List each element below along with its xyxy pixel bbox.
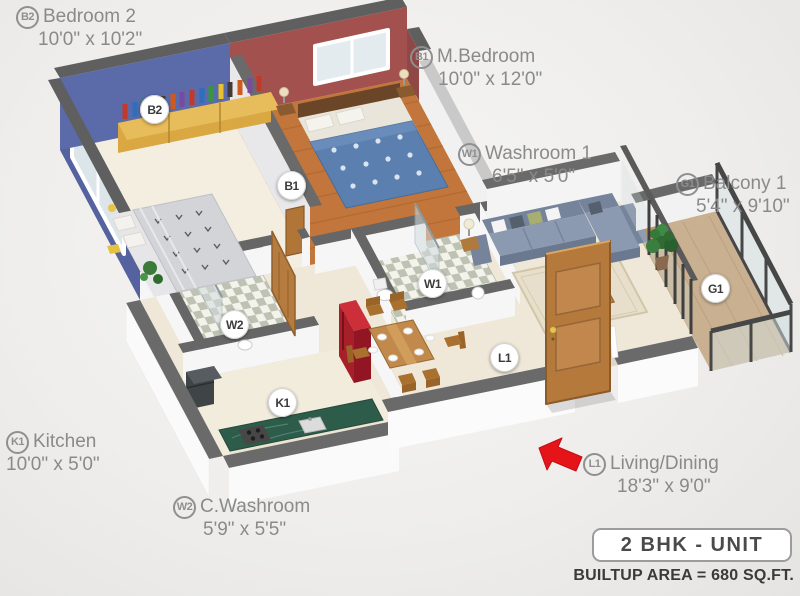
room-badge-b1: B1 — [410, 46, 433, 69]
lamp — [108, 204, 116, 212]
lamp — [280, 88, 289, 97]
room-name: Bedroom 2 — [43, 7, 136, 28]
room-marker-w1: W1 — [418, 269, 447, 298]
door-knob — [550, 327, 557, 334]
room-badge-k1: K1 — [6, 431, 29, 454]
room-dims: 10'0" x 10'2" — [16, 30, 142, 51]
entrance-arrow-icon — [539, 438, 582, 471]
room-name: Kitchen — [33, 432, 96, 453]
room-dims: 10'0" x 12'0" — [410, 70, 542, 91]
floorplan-3d-render — [0, 0, 800, 596]
lamp — [400, 70, 409, 79]
label-bedroom2: B2 Bedroom 2 10'0" x 10'2" — [16, 6, 142, 51]
label-kitchen: K1 Kitchen 10'0" x 5'0" — [6, 431, 100, 476]
room-name: M.Bedroom — [437, 47, 535, 68]
room-marker-k1: K1 — [268, 388, 297, 417]
room-badge-w1: W1 — [458, 143, 481, 166]
label-balcony1: G1 Balcony 1 5'4" x 9'10" — [676, 173, 790, 218]
label-master-bedroom: B1 M.Bedroom 10'0" x 12'0" — [410, 46, 542, 91]
room-dims: 5'4" x 9'10" — [676, 197, 790, 218]
room-dims: 18'3" x 9'0" — [583, 477, 719, 498]
room-badge-b2: B2 — [16, 6, 39, 29]
room-marker-b2: B2 — [140, 95, 169, 124]
washbasin — [472, 287, 484, 299]
builtup-area-text: BUILTUP AREA = 680 SQ.FT. — [560, 567, 794, 585]
lamp — [464, 219, 474, 229]
room-marker-w2: W2 — [220, 310, 249, 339]
room-name: Balcony 1 — [703, 174, 786, 195]
room-badge-g1: G1 — [676, 173, 699, 196]
toilet-tank — [373, 278, 387, 290]
entrance-door — [546, 241, 618, 413]
room-marker-l1: L1 — [490, 343, 519, 372]
room-name: Washroom 1 — [485, 144, 592, 165]
room-name: C.Washroom — [200, 497, 310, 518]
floorplan-canvas: B2 B1 W1 W2 K1 L1 G1 B2 Bedroom 2 10'0" … — [0, 0, 800, 596]
room-marker-g1: G1 — [701, 274, 730, 303]
unit-type-box: 2 BHK - UNIT — [592, 528, 792, 562]
room-badge-l1: L1 — [583, 453, 606, 476]
room-dims: 5'9" x 5'5" — [173, 520, 310, 541]
label-living-dining: L1 Living/Dining 18'3" x 9'0" — [583, 453, 719, 498]
label-common-washroom: W2 C.Washroom 5'9" x 5'5" — [173, 496, 310, 541]
room-badge-w2: W2 — [173, 496, 196, 519]
room-marker-b1: B1 — [277, 171, 306, 200]
room-dims: 6'5" x 5'0" — [458, 167, 592, 188]
toilet-2 — [238, 340, 252, 350]
label-washroom1: W1 Washroom 1 6'5" x 5'0" — [458, 143, 592, 188]
room-name: Living/Dining — [610, 454, 719, 475]
room-dims: 10'0" x 5'0" — [6, 455, 100, 476]
